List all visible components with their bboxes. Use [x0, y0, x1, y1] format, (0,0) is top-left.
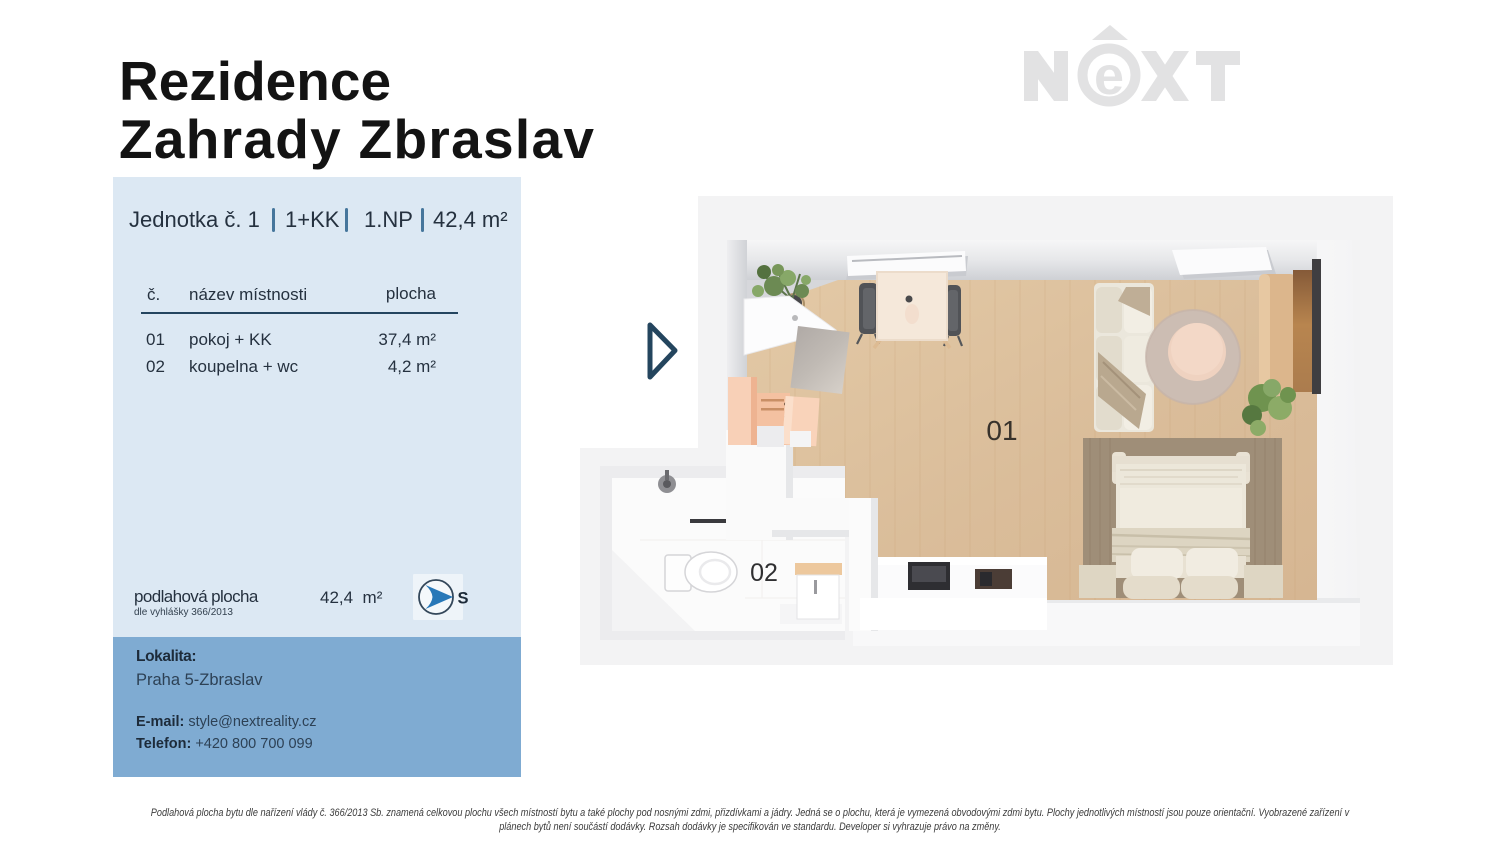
- svg-text:02: 02: [750, 559, 778, 587]
- svg-text:e: e: [1094, 46, 1124, 106]
- svg-text:01: 01: [986, 415, 1017, 446]
- svg-text:S: S: [458, 590, 469, 608]
